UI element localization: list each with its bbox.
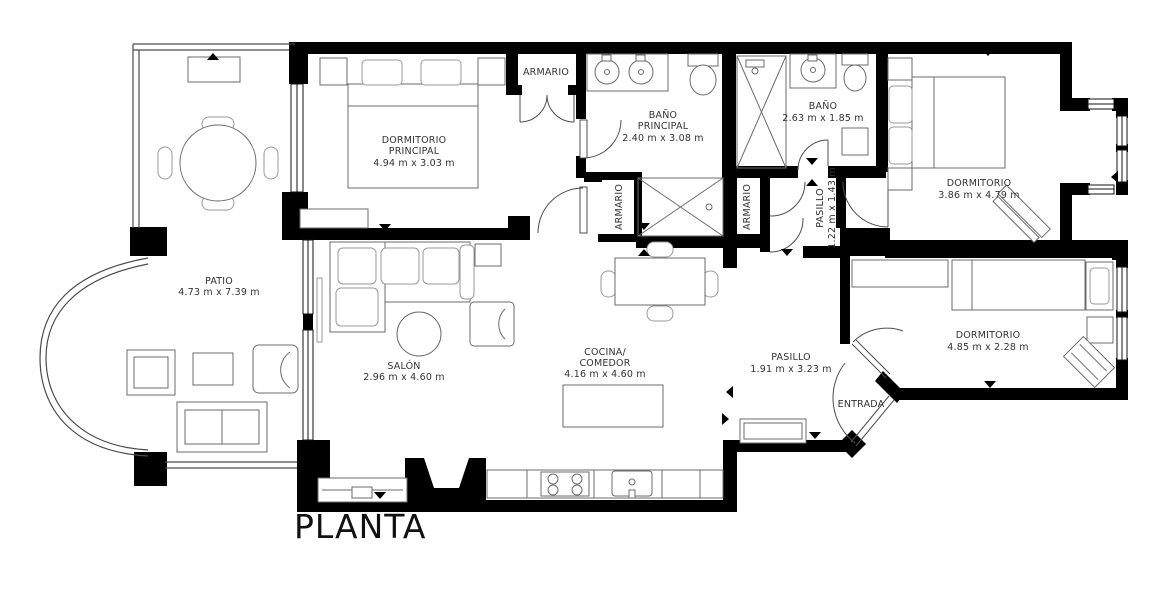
nightstand — [320, 58, 347, 85]
room-dims: 1.91 m x 3.23 m — [750, 364, 832, 375]
label-cocina-comedor: COCINA/ COMEDOR 4.16 m x 4.60 m — [564, 347, 646, 380]
pillow — [362, 60, 402, 85]
room-name2: PRINCIPAL — [638, 121, 689, 132]
label-pasillo-pequeno: PASILLO 1.22 m x 1.43 m — [815, 167, 838, 249]
nightstand — [888, 168, 912, 190]
dining-table-set — [601, 242, 718, 321]
bath-cabinet — [842, 128, 868, 155]
shower-mixer — [746, 60, 764, 67]
wardrobe — [852, 260, 948, 287]
bano-fixtures — [737, 54, 868, 168]
room-name: DORMITORIO — [956, 330, 1021, 341]
bano-principal-fixtures — [587, 54, 723, 236]
folded-armchair — [1064, 337, 1115, 388]
room-dims: 2.40 m x 3.08 m — [622, 133, 704, 144]
floor-plan-drawing: PATIO 4.73 m x 7.39 m DORMITORIO PRINCIP… — [0, 0, 1165, 590]
kitchen-counter — [487, 470, 723, 498]
room-dims: 1.22 m x 1.43 m — [827, 167, 838, 249]
plan-title: PLANTA — [294, 507, 426, 546]
label-bano-principal: BAÑO PRINCIPAL 2.40 m x 3.08 m — [622, 110, 704, 144]
shower-area — [638, 178, 723, 236]
dormitorio-inferior-furniture — [852, 260, 1114, 387]
armario-der-doors — [770, 182, 805, 252]
bano-principal-door — [580, 120, 621, 158]
dormitorio-derecha-furniture — [888, 58, 1050, 244]
room-dims: 2.63 m x 1.85 m — [782, 113, 864, 124]
shelf — [317, 278, 322, 342]
room-name: DORMITORIO — [382, 135, 447, 146]
nightstand — [478, 58, 505, 85]
floor-plan-page: PATIO 4.73 m x 7.39 m DORMITORIO PRINCIP… — [0, 0, 1165, 590]
patio-round-armchair — [253, 345, 298, 393]
pillow — [889, 86, 912, 123]
label-dormitorio-inferior: DORMITORIO 4.85 m x 2.28 m — [947, 330, 1029, 353]
nightstand — [888, 58, 912, 80]
corner-sofa — [330, 242, 474, 332]
pouf — [397, 312, 441, 356]
round-dining-table — [158, 117, 278, 210]
room-name: PASILLO — [815, 188, 826, 228]
patio-coffee-table — [193, 353, 233, 385]
toilet — [688, 54, 718, 95]
pillow — [889, 127, 912, 164]
label-patio: PATIO 4.73 m x 7.39 m — [178, 276, 260, 298]
label-armario-der: ARMARIO — [742, 184, 753, 230]
label-armario-izq: ARMARIO — [614, 184, 625, 230]
tv-cabinet — [318, 478, 407, 502]
patio-sofa — [177, 402, 267, 452]
label-dormitorio-derecha: DORMITORIO 3.86 m x 4.79 m — [938, 178, 1020, 201]
room-dims: 4.73 m x 7.39 m — [178, 287, 260, 298]
armchair — [470, 302, 514, 346]
shower — [737, 56, 786, 168]
room-dims: 4.85 m x 2.28 m — [947, 342, 1029, 353]
room-name: BAÑO — [809, 101, 837, 112]
side-table — [475, 244, 501, 266]
room-name: PASILLO — [771, 352, 811, 363]
room-name: SALÓN — [387, 360, 420, 372]
kitchen-island — [563, 385, 663, 427]
room-dims: 3.86 m x 4.79 m — [938, 190, 1020, 201]
room-name: PATIO — [205, 276, 233, 287]
toilet — [842, 54, 868, 91]
label-salon: SALÓN 2.96 m x 4.60 m — [363, 360, 445, 383]
patio-planter — [188, 57, 240, 82]
pillow — [1090, 268, 1109, 304]
label-entrada: ENTRADA — [838, 399, 885, 410]
room-name: BAÑO — [649, 110, 677, 121]
bano-door — [798, 140, 828, 170]
nightstand — [1087, 317, 1113, 343]
pillow — [421, 60, 461, 85]
room-name: DORMITORIO — [947, 178, 1012, 189]
room-name2: COMEDOR — [579, 358, 630, 369]
hall-door — [538, 187, 587, 233]
room-dims: 4.16 m x 4.60 m — [564, 369, 646, 380]
room-dims: 2.96 m x 4.60 m — [363, 372, 445, 383]
label-armario-top: ARMARIO — [523, 67, 569, 78]
room-name: COCINA/ — [584, 347, 626, 358]
dormitorio-inferior-door — [852, 328, 903, 378]
label-bano: BAÑO 2.63 m x 1.85 m — [782, 101, 864, 124]
dresser — [300, 209, 368, 228]
double-bed — [912, 77, 1005, 168]
armario-top-double-door — [520, 95, 574, 122]
label-pasillo: PASILLO 1.91 m x 3.23 m — [750, 352, 832, 375]
room-dims: 4.94 m x 3.03 m — [373, 158, 455, 169]
dormitorio-derecha-door — [843, 182, 888, 227]
room-name2: PRINCIPAL — [389, 146, 440, 157]
